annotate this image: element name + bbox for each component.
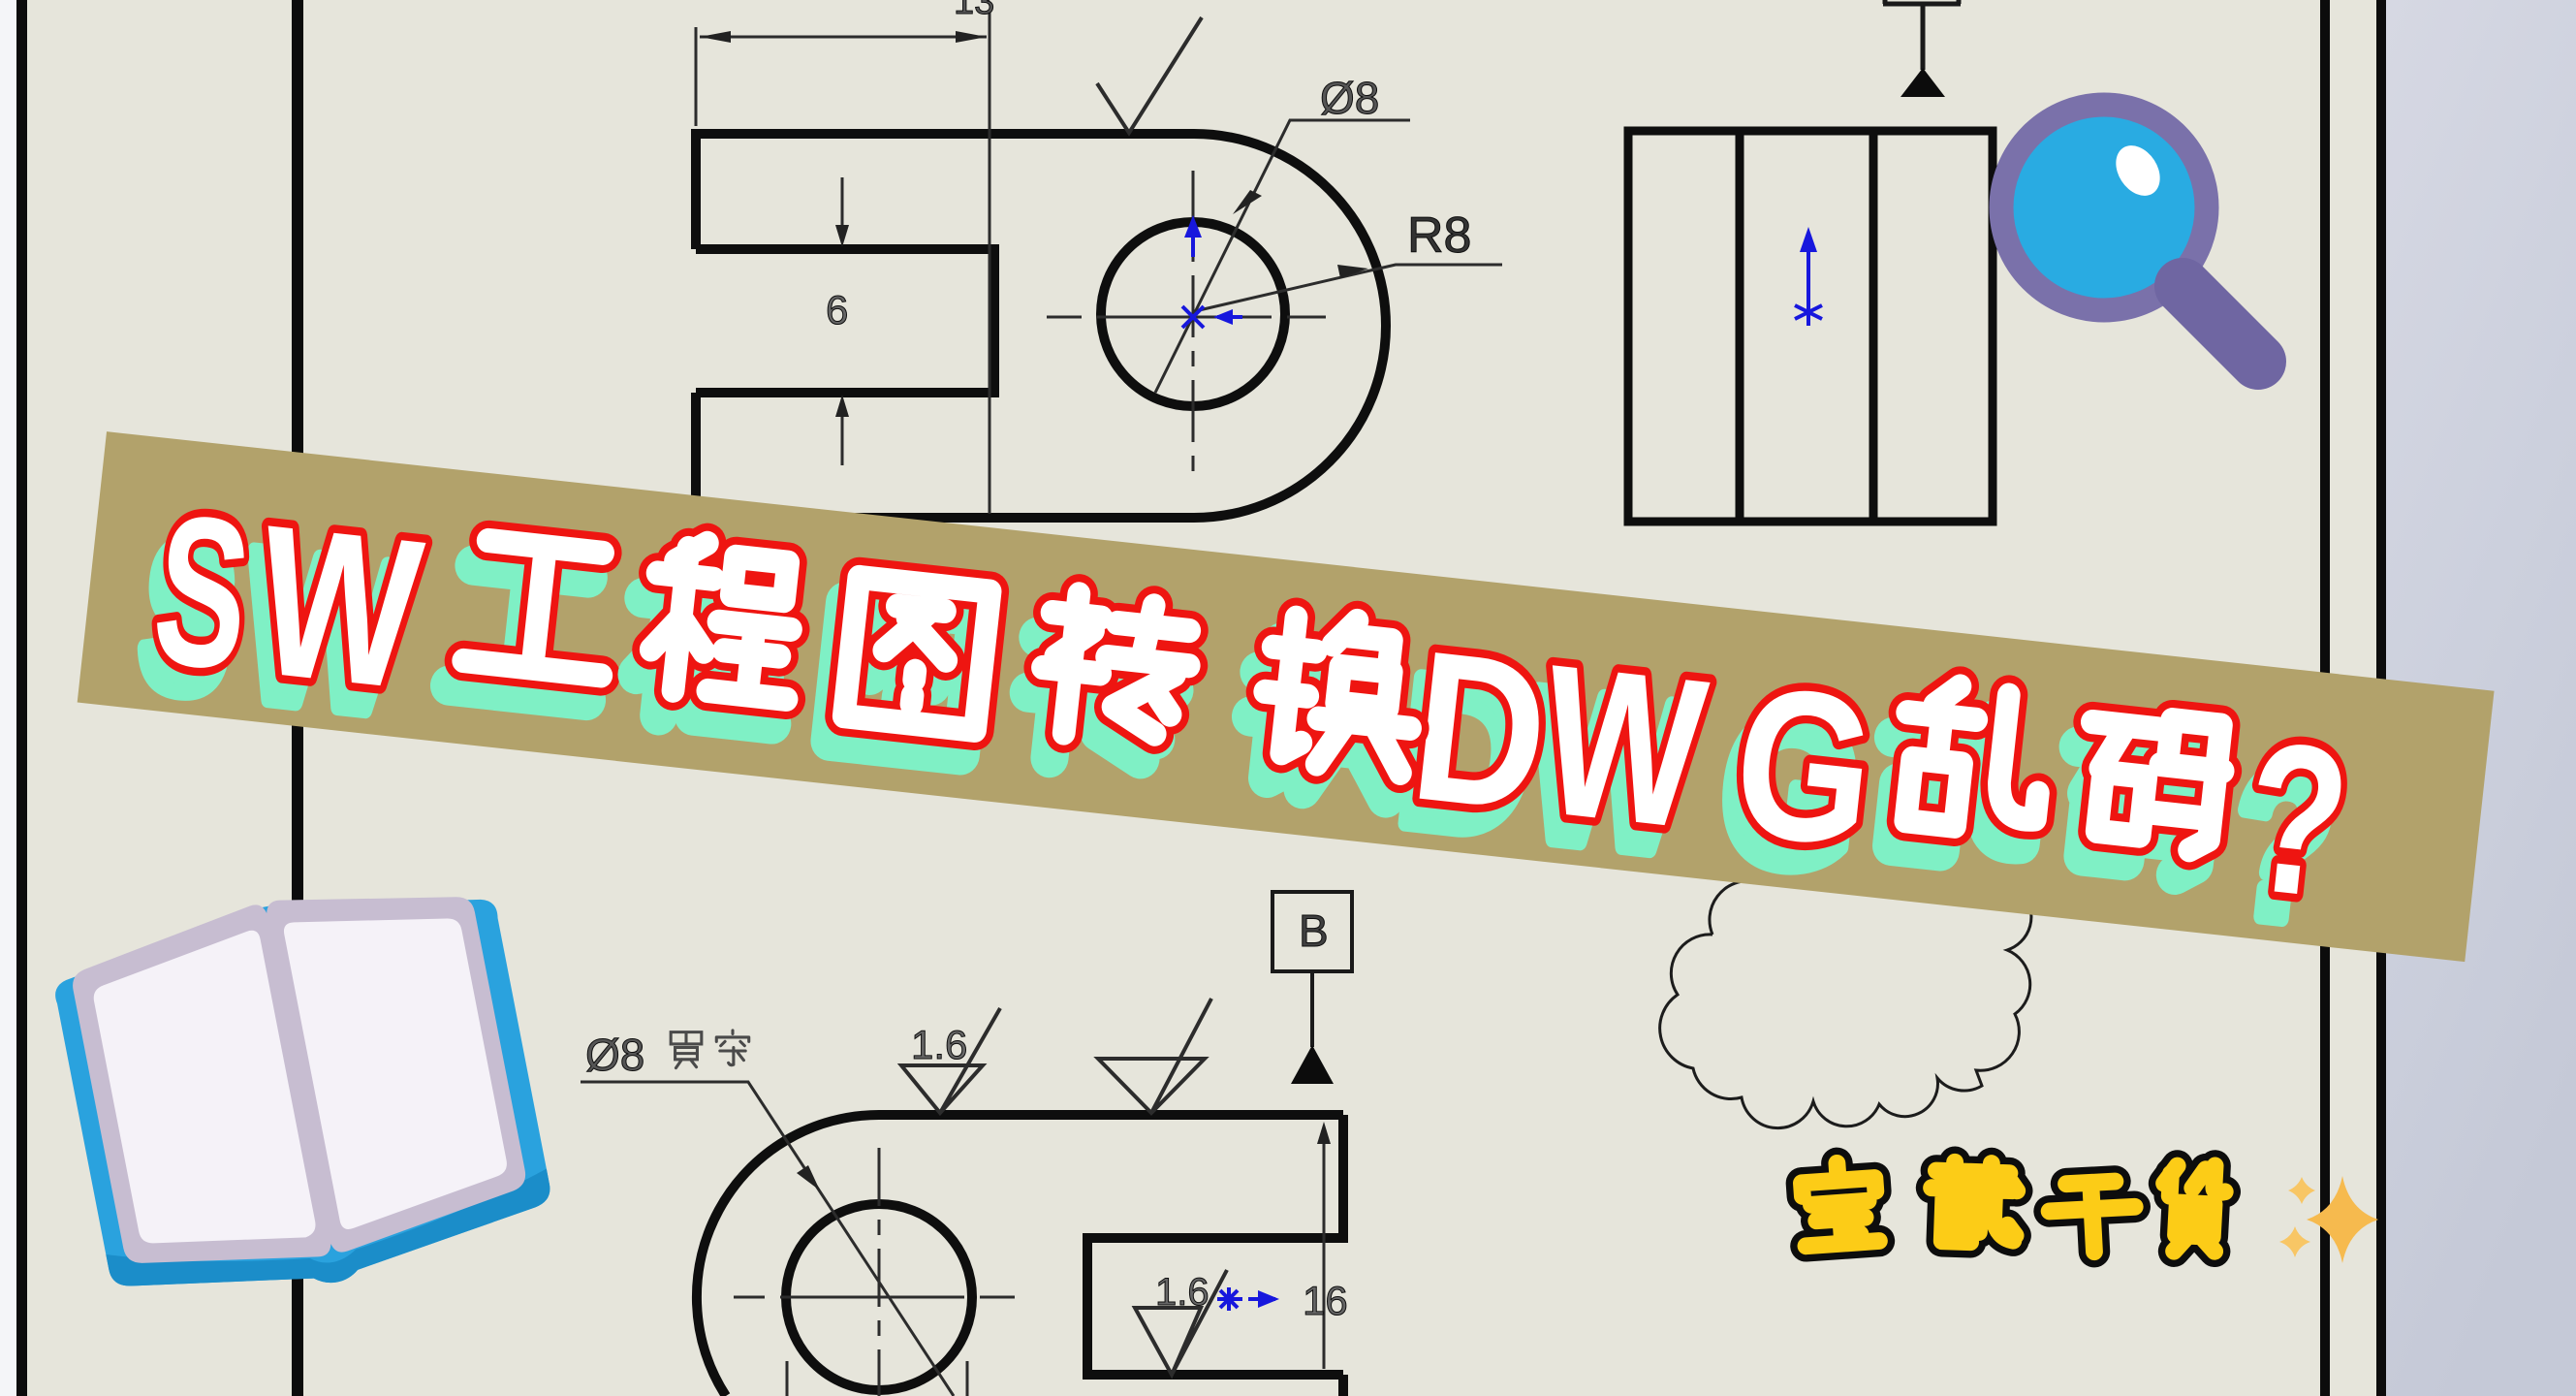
svg-text:13: 13 [954, 0, 994, 22]
svg-text:R8: R8 [1407, 207, 1471, 264]
svg-text:1.6: 1.6 [1155, 1271, 1209, 1314]
svg-text:16: 16 [1303, 1278, 1348, 1323]
svg-text:Ø8: Ø8 [1320, 73, 1379, 123]
svg-text:B: B [1299, 905, 1329, 956]
svg-text:Ø8: Ø8 [585, 1030, 644, 1080]
svg-text:6: 6 [826, 287, 848, 333]
svg-text:W: W [1531, 620, 1715, 874]
svg-text:1.6: 1.6 [911, 1022, 967, 1067]
svg-text:G: G [1724, 640, 1885, 892]
svg-text:W: W [247, 481, 431, 735]
